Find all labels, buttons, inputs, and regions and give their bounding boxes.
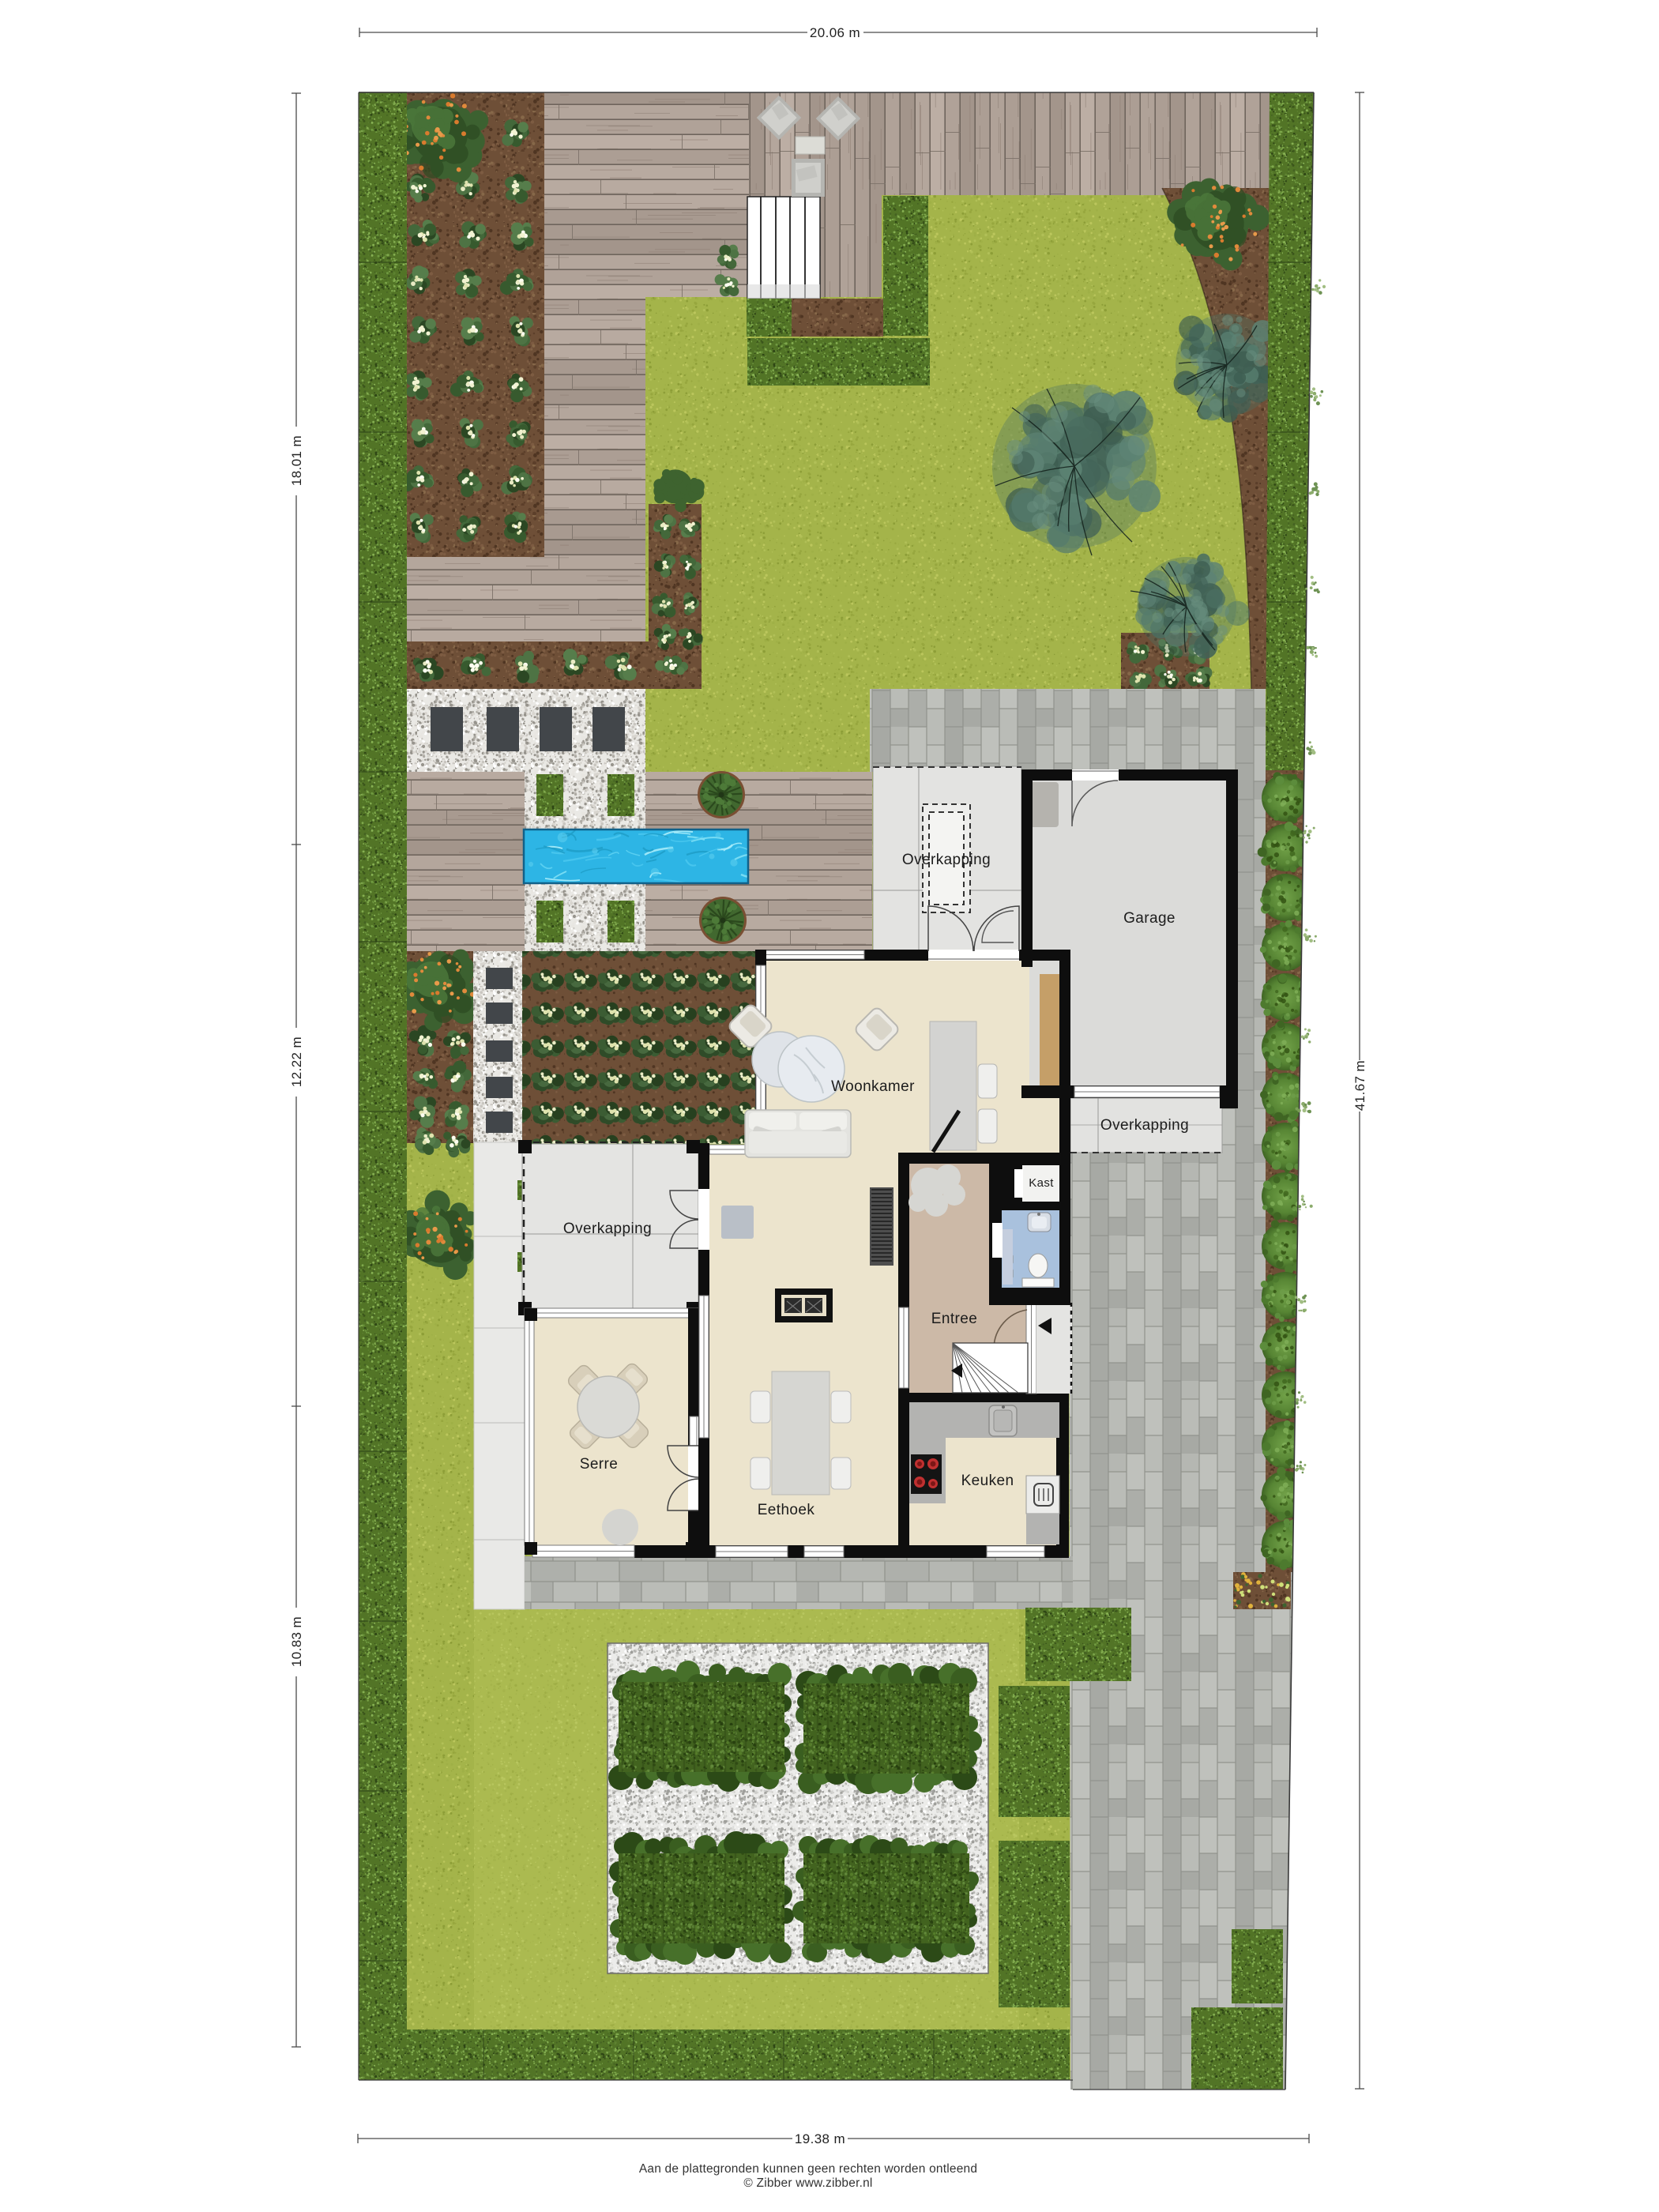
svg-text:Overkapping: Overkapping	[1100, 1117, 1189, 1134]
svg-text:Entree: Entree	[931, 1311, 977, 1327]
svg-text:Serre: Serre	[580, 1456, 618, 1473]
svg-text:© Zibber www.zibber.nl: © Zibber www.zibber.nl	[743, 2176, 872, 2190]
svg-text:19.38 m: 19.38 m	[795, 2131, 845, 2146]
svg-text:Aan de plattegronden kunnen ge: Aan de plattegronden kunnen geen rechten…	[639, 2162, 977, 2176]
svg-text:18.01 m: 18.01 m	[289, 435, 304, 486]
svg-text:Overkapping: Overkapping	[563, 1221, 652, 1237]
svg-text:41.67 m: 41.67 m	[1352, 1060, 1367, 1111]
svg-text:Keuken: Keuken	[961, 1473, 1014, 1489]
svg-text:20.06 m: 20.06 m	[810, 25, 860, 40]
svg-text:Overkapping: Overkapping	[902, 852, 991, 868]
svg-text:Garage: Garage	[1123, 910, 1176, 927]
svg-text:12.22 m: 12.22 m	[289, 1036, 304, 1087]
svg-text:Woonkamer: Woonkamer	[831, 1078, 915, 1095]
svg-text:Kast: Kast	[1029, 1176, 1054, 1190]
svg-text:Eethoek: Eethoek	[758, 1502, 815, 1518]
svg-text:10.83 m: 10.83 m	[289, 1616, 304, 1667]
